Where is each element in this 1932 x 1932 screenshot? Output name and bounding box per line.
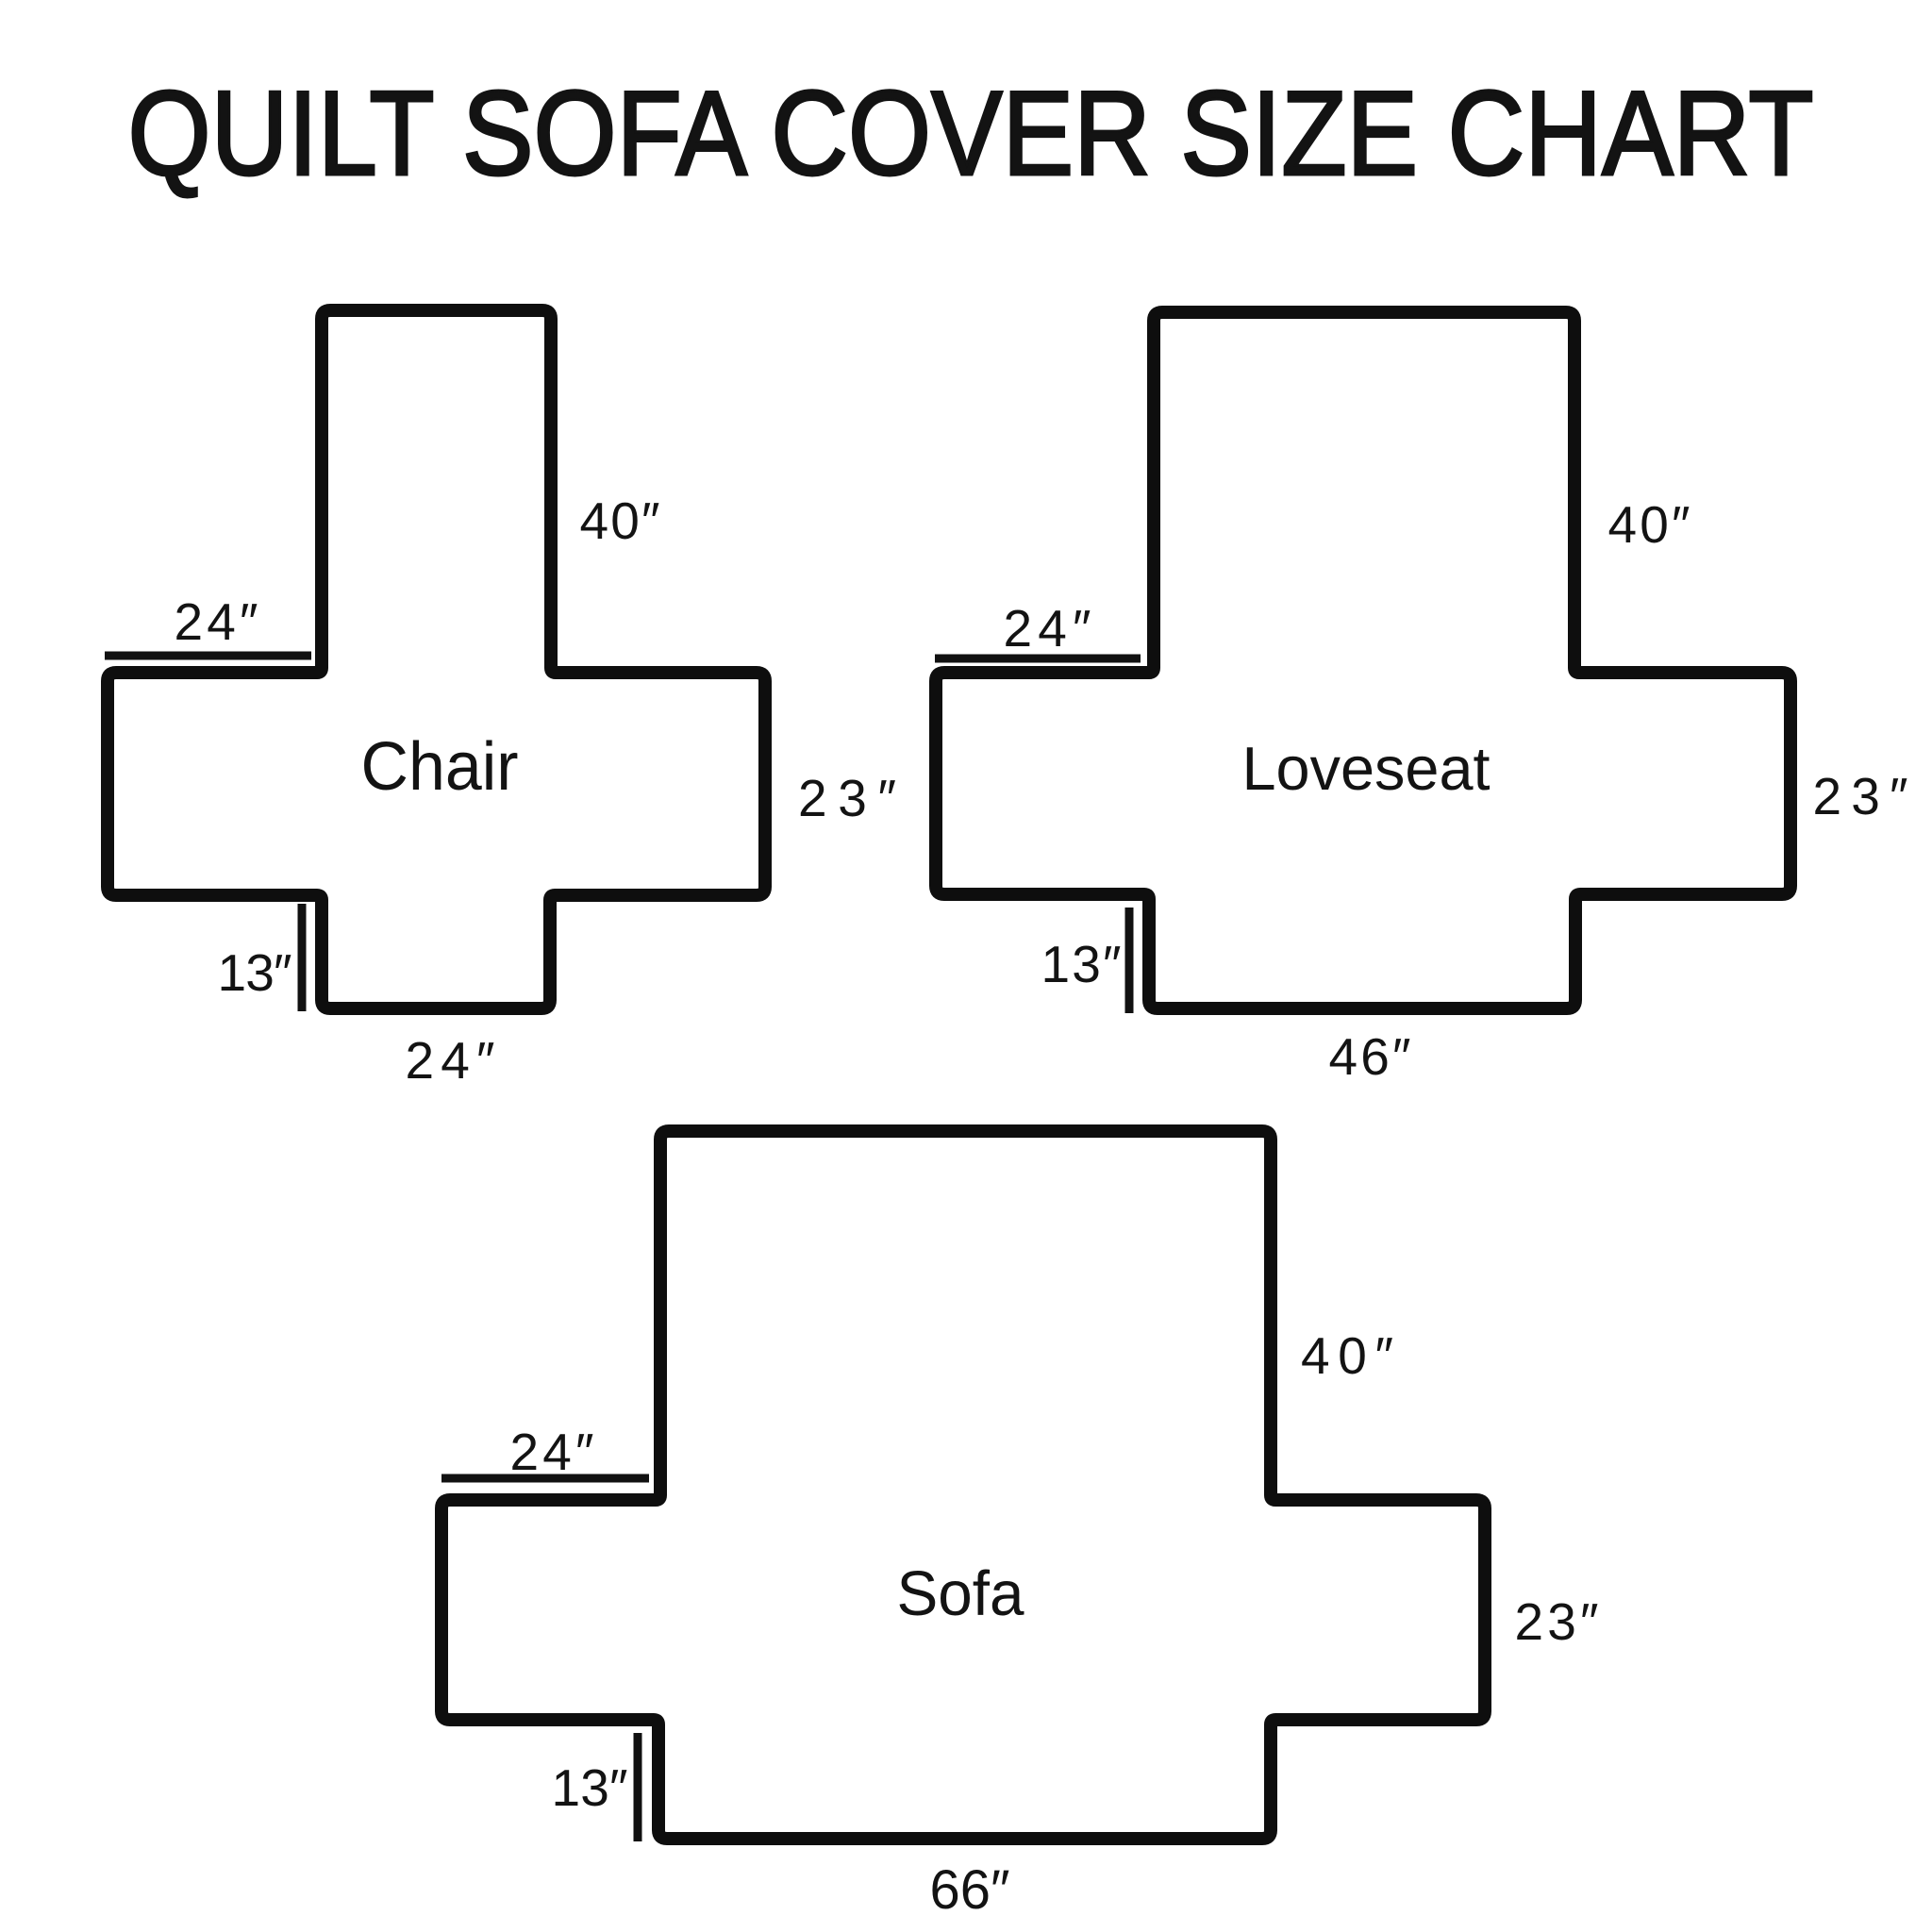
svg-text:66″: 66″ bbox=[930, 1859, 1010, 1921]
svg-text:40″: 40″ bbox=[580, 491, 660, 550]
svg-text:23″: 23″ bbox=[1515, 1592, 1599, 1651]
svg-text:Sofa: Sofa bbox=[897, 1558, 1025, 1629]
svg-text:24″: 24″ bbox=[175, 592, 258, 651]
svg-text:40″: 40″ bbox=[1608, 495, 1690, 554]
svg-text:Chair: Chair bbox=[361, 729, 519, 805]
svg-text:24″: 24″ bbox=[1004, 599, 1091, 658]
svg-text:13″: 13″ bbox=[1041, 935, 1122, 993]
svg-text:QUILT SOFA COVER SIZE CHART: QUILT SOFA COVER SIZE CHART bbox=[128, 66, 1814, 200]
svg-text:Loveseat: Loveseat bbox=[1242, 734, 1491, 803]
svg-text:13″: 13″ bbox=[552, 1758, 628, 1817]
svg-text:23″: 23″ bbox=[798, 769, 896, 827]
svg-text:24″: 24″ bbox=[406, 1031, 495, 1090]
svg-text:46″: 46″ bbox=[1329, 1027, 1411, 1086]
svg-text:40″: 40″ bbox=[1301, 1326, 1393, 1385]
svg-text:23″: 23″ bbox=[1813, 767, 1908, 825]
svg-text:24″: 24″ bbox=[510, 1423, 594, 1481]
svg-text:13″: 13″ bbox=[218, 943, 292, 1002]
